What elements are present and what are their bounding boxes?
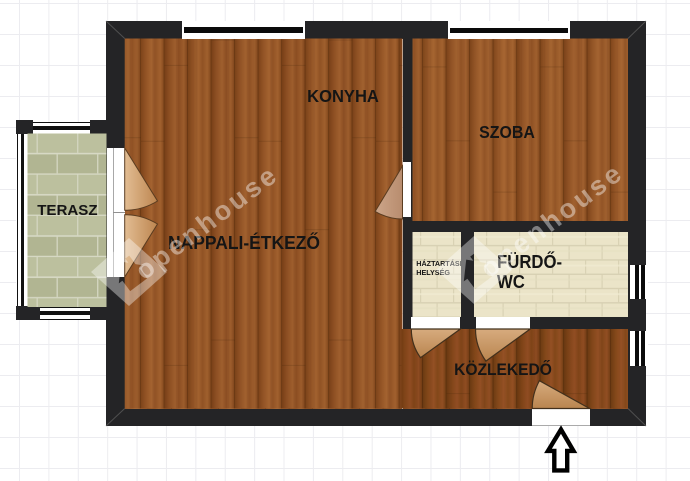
svg-text:openhouse: openhouse [475,157,630,284]
